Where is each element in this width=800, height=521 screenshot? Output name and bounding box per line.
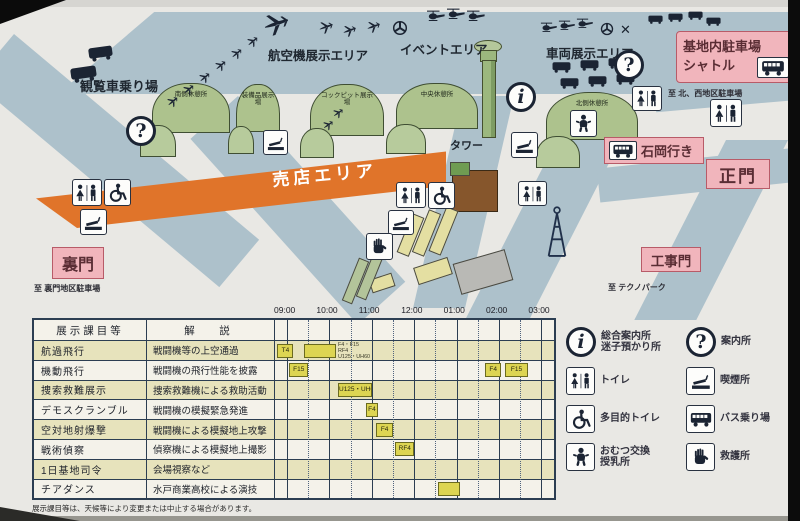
timeline-cell xyxy=(275,480,554,499)
helicopter-icon xyxy=(466,10,486,22)
subject-cell: 捜索救難展示 xyxy=(34,381,147,400)
time-label: 02:00 xyxy=(486,305,507,315)
legend-label-line: 総合案内所 xyxy=(601,331,661,343)
first-aid-icon xyxy=(366,233,393,260)
subject-cell: チアダンス xyxy=(34,480,147,499)
timeline-cell: RF4 xyxy=(275,440,554,459)
photo-top-strip xyxy=(0,0,788,7)
subject-column-header: 展示課目等 xyxy=(34,320,147,340)
shuttle-bus-icon xyxy=(87,42,114,62)
ishioka-sign-label: 石岡行き xyxy=(641,141,693,160)
toilet-icon xyxy=(396,182,426,208)
legend-item: 多目的トイレ xyxy=(566,405,686,433)
schedule-table: 展示課目等 解 説 航過飛行戦闘機等の上空通過T4F4・F15RF4U125・U… xyxy=(32,318,556,500)
time-label: 03:00 xyxy=(528,305,549,315)
toilet-icon xyxy=(632,86,662,111)
schedule-row: 航過飛行戦闘機等の上空通過T4F4・F15RF4U125・UH60 xyxy=(34,340,554,360)
building-central-rest: 中央休憩所 xyxy=(396,83,478,129)
timeline-cell: T4F4・F15RF4U125・UH60 xyxy=(275,341,554,360)
question-icon: ? xyxy=(614,50,644,80)
display-vehicle-icon xyxy=(668,12,683,22)
timeline-note: F4・F15RF4U125・UH60 xyxy=(338,342,370,361)
smoking-icon xyxy=(686,367,715,395)
to-north-west-parking-label: 至 北、西地区駐車場 xyxy=(668,88,742,99)
wheelchair-icon xyxy=(566,405,595,433)
legend-label: 救護所 xyxy=(720,451,750,463)
legend-item: i総合案内所迷子預かり所 xyxy=(566,327,686,357)
schedule-row: チアダンス水戸商業高校による演技 xyxy=(34,479,554,499)
legend-label-line: 多目的トイレ xyxy=(600,413,660,425)
brown-building xyxy=(452,170,498,212)
bus-icon xyxy=(757,57,789,78)
info-icon: i xyxy=(566,327,596,357)
subject-cell: 航過飛行 xyxy=(34,341,147,360)
firstaid-icon xyxy=(686,443,715,471)
legend-item: 喫煙所 xyxy=(686,367,798,395)
description-cell: 水戸商業高校による演技 xyxy=(147,480,275,499)
timeline-bar: F15 xyxy=(505,363,527,377)
screen-photo: 売店エリア 南側休憩所 装備品展示場 コックピット展示場 中央休憩所 北側休憩所… xyxy=(0,0,800,521)
legend-item: バス乗り場 xyxy=(686,405,798,433)
timeline-cell: F15F4F15 xyxy=(275,361,554,380)
timeline-bar xyxy=(438,482,459,496)
schedule-panel: 09:0010:0011:0012:0001:0002:0003:00 展示課目… xyxy=(32,318,556,514)
schedule-footnote: 展示課目等は、天候等により変更または中止する場合があります。 xyxy=(32,503,556,514)
green-rooftop xyxy=(450,162,470,176)
schedule-rows: 航過飛行戦闘機等の上空通過T4F4・F15RF4U125・UH60機動飛行戦闘機… xyxy=(34,340,554,498)
display-vehicle-icon xyxy=(560,76,579,89)
legend-label-line: 迷子預かり所 xyxy=(601,342,661,354)
subject-cell: 機動飛行 xyxy=(34,361,147,380)
propeller-roundel-icon xyxy=(392,20,408,36)
legend-label-line: バス乗り場 xyxy=(720,413,770,425)
subject-cell: 空対地射爆撃 xyxy=(34,420,147,439)
baby-icon xyxy=(566,443,595,471)
time-label: 11:00 xyxy=(359,305,380,315)
legend-label-line: 救護所 xyxy=(720,451,750,463)
legend-label-line: 授乳所 xyxy=(600,457,650,469)
helicopter-icon xyxy=(540,22,558,33)
building-label: 中央休憩所 xyxy=(397,91,477,98)
description-cell: 戦闘機の模擬緊急発進 xyxy=(147,400,275,419)
construction-gate-sign: 工事門 xyxy=(641,247,701,272)
schedule-row: 空対地射爆撃戦闘機による模擬地上攻撃F4 xyxy=(34,419,554,439)
bus-icon xyxy=(686,405,715,433)
legend-item: 救護所 xyxy=(686,443,798,471)
to-back-gate-parking-label: 至 裏門地区駐車場 xyxy=(34,283,100,294)
building-cockpit-annex xyxy=(300,128,334,158)
legend-label: 多目的トイレ xyxy=(600,413,660,425)
photo-bottom-strip xyxy=(0,516,788,521)
display-vehicle-icon xyxy=(588,74,607,87)
building-label: 装備品展示場 xyxy=(241,92,275,106)
propeller-roundel-icon xyxy=(600,22,614,36)
timeline-cell xyxy=(275,460,554,479)
legend-item: おむつ交換授乳所 xyxy=(566,443,686,471)
description-column-header: 解 説 xyxy=(147,320,275,340)
schedule-row: 捜索救難展示捜索救難機による救助活動U125・UH60 xyxy=(34,380,554,400)
tower-label: タワー xyxy=(450,137,483,153)
timeline-bar: F4 xyxy=(485,363,501,377)
legend-label: おむつ交換授乳所 xyxy=(600,446,650,469)
question-icon: ? xyxy=(126,116,156,146)
timeline-bar: F4 xyxy=(376,423,393,437)
shuttle-sign: 基地内駐車場 シャトル xyxy=(676,31,794,83)
building-label: 北側休憩所 xyxy=(547,100,637,107)
time-label: 01:00 xyxy=(444,305,465,315)
x-mark-icon: ✕ xyxy=(620,22,631,38)
aircraft-area-label: 航空機展示エリア xyxy=(268,45,368,64)
time-label: 09:00 xyxy=(274,305,295,315)
time-label: 12:00 xyxy=(401,305,422,315)
building-equipment-annex xyxy=(228,126,254,154)
event-area-label: イベントエリア xyxy=(400,39,488,58)
main-gate-label: 正門 xyxy=(719,162,757,187)
legend-label-line: 案内所 xyxy=(721,336,751,348)
subject-cell: デモスクランブル xyxy=(34,400,147,419)
legend-item: ?案内所 xyxy=(686,327,798,357)
display-vehicle-icon xyxy=(706,16,721,26)
legend-item: トイレ xyxy=(566,367,686,395)
timeline-cell: U125・UH60 xyxy=(275,381,554,400)
building-central-rest-annex xyxy=(386,124,426,154)
timeline-header-cell xyxy=(275,320,554,340)
photo-corner-wedge xyxy=(0,0,66,24)
timeline-bar xyxy=(304,344,336,358)
legend-label: トイレ xyxy=(600,375,630,387)
toilet-icon xyxy=(518,181,547,206)
legend-label: 案内所 xyxy=(721,336,751,348)
construction-gate-label: 工事門 xyxy=(651,250,692,270)
shuttle-bus-icon xyxy=(69,62,98,84)
building-equipment: 装備品展示場 xyxy=(236,84,280,132)
smoking-icon xyxy=(263,130,288,155)
radio-tower-icon xyxy=(544,206,570,258)
time-label: 10:00 xyxy=(316,305,337,315)
description-cell: 戦闘機による模擬地上攻撃 xyxy=(147,420,275,439)
to-technopark-label: 至 テクノパーク xyxy=(608,282,666,293)
description-cell: 戦闘機等の上空通過 xyxy=(147,341,275,360)
description-cell: 偵察機による模擬地上撮影 xyxy=(147,440,275,459)
timeline-note-line: U125・UH60 xyxy=(338,354,370,360)
toilet-icon xyxy=(710,99,742,127)
building-north-rest-annex xyxy=(536,136,580,168)
shuttle-sign-line1: 基地内駐車場 xyxy=(683,36,787,55)
timeline-bar: T4 xyxy=(277,344,293,358)
baby-care-icon xyxy=(570,110,597,137)
display-vehicle-icon xyxy=(580,58,599,71)
question-icon: ? xyxy=(686,327,716,357)
timeline-cell: F4 xyxy=(275,420,554,439)
legend-label: バス乗り場 xyxy=(720,413,770,425)
description-cell: 戦闘機の飛行性能を披露 xyxy=(147,361,275,380)
main-gate-sign: 正門 xyxy=(706,159,770,189)
subject-cell: 1日基地司令 xyxy=(34,460,147,479)
schedule-row: 1日基地司令会場視察など xyxy=(34,459,554,479)
timeline-bar: RF4 xyxy=(395,442,414,456)
smoking-icon xyxy=(80,209,107,235)
schedule-row: デモスクランブル戦闘機の模擬緊急発進F4 xyxy=(34,399,554,419)
smoking-icon xyxy=(388,210,414,235)
ishioka-bus-sign: 石岡行き xyxy=(604,137,704,164)
toilet-icon xyxy=(72,179,102,206)
helicopter-icon xyxy=(558,20,576,31)
control-tower-shaft xyxy=(482,60,496,138)
subject-cell: 戦術偵察 xyxy=(34,440,147,459)
display-vehicle-icon xyxy=(688,10,703,20)
schedule-header-row: 展示課目等 解 説 xyxy=(34,320,554,340)
helicopter-icon xyxy=(576,18,594,29)
legend-label-line: トイレ xyxy=(600,375,630,387)
display-vehicle-icon xyxy=(552,60,571,73)
time-axis: 09:0010:0011:0012:0001:0002:0003:00 xyxy=(34,305,558,317)
timeline-bar: F4 xyxy=(366,403,379,417)
back-gate-sign: 裏門 xyxy=(52,247,104,279)
legend-label: 喫煙所 xyxy=(720,375,750,387)
schedule-row: 機動飛行戦闘機の飛行性能を披露F15F4F15 xyxy=(34,360,554,380)
photo-right-edge xyxy=(788,0,800,521)
helicopter-icon xyxy=(446,8,466,20)
display-vehicle-icon xyxy=(648,14,663,24)
info-icon: i xyxy=(506,82,536,112)
building-label: コックピット展示場 xyxy=(321,92,373,106)
timeline-cell: F4 xyxy=(275,400,554,419)
timeline-bar: F15 xyxy=(289,363,308,377)
legend-label-line: おむつ交換 xyxy=(600,446,650,458)
back-gate-label: 裏門 xyxy=(62,251,94,275)
description-cell: 会場視察など xyxy=(147,460,275,479)
legend-label: 総合案内所迷子預かり所 xyxy=(601,331,661,354)
smoking-icon xyxy=(511,132,538,158)
toilet-icon xyxy=(566,367,595,395)
schedule-row: 戦術偵察偵察機による模擬地上撮影RF4 xyxy=(34,439,554,459)
legend: i総合案内所迷子預かり所?案内所トイレ喫煙所多目的トイレバス乗り場おむつ交換授乳… xyxy=(566,327,798,471)
helicopter-icon xyxy=(426,10,446,22)
bus-icon xyxy=(609,141,637,160)
wheelchair-icon xyxy=(428,182,455,209)
wheelchair-icon xyxy=(104,179,131,206)
description-cell: 捜索救難機による救助活動 xyxy=(147,381,275,400)
legend-label-line: 喫煙所 xyxy=(720,375,750,387)
timeline-bar: U125・UH60 xyxy=(338,383,372,397)
